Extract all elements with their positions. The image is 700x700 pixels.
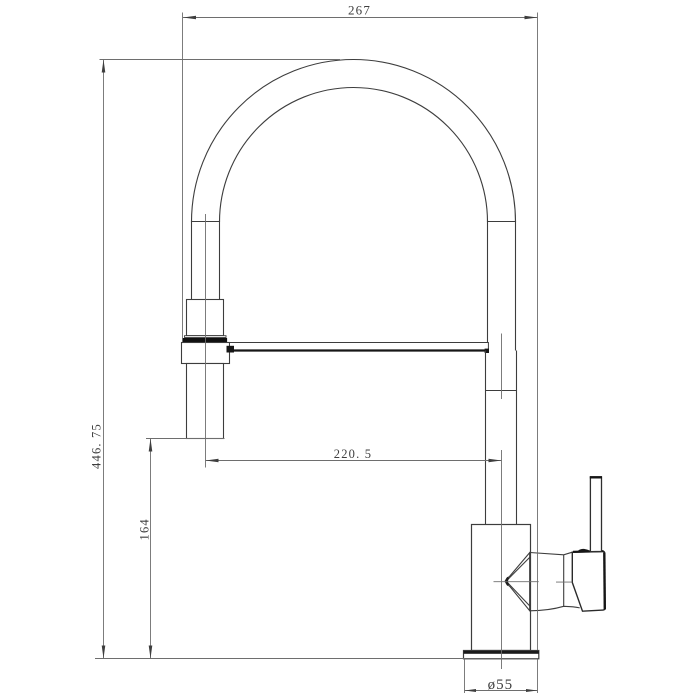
svg-text:220. 5: 220. 5 — [334, 447, 372, 461]
svg-text:164: 164 — [137, 518, 151, 540]
svg-text:267: 267 — [348, 2, 371, 17]
svg-text:446. 75: 446. 75 — [89, 423, 103, 469]
svg-text:ø55: ø55 — [488, 677, 514, 693]
